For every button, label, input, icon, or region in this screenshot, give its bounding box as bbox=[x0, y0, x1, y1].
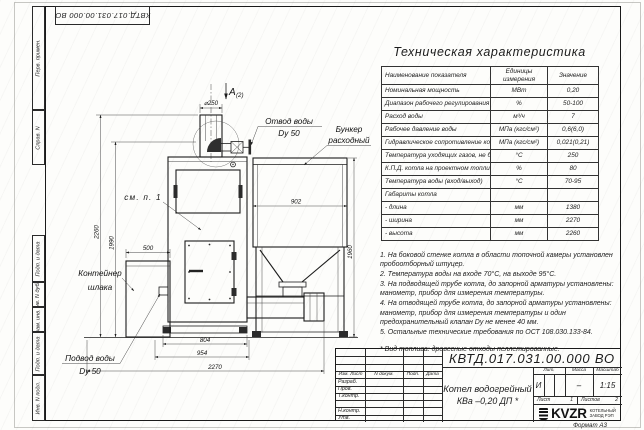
cell-units: МВт bbox=[491, 85, 548, 98]
format-label: Формат А3 bbox=[545, 422, 635, 429]
margin-box-perv-primen: Перв. примен. bbox=[32, 6, 45, 110]
sheets-number: 2 bbox=[615, 397, 618, 403]
col-data: Дата bbox=[423, 371, 442, 378]
row-prov: Пров. bbox=[336, 386, 365, 393]
label-water-inlet-dy: Dy 50 bbox=[79, 367, 101, 376]
note-item: 4. На отводящей трубе котла, до запорной… bbox=[380, 299, 618, 326]
cell-units: °С bbox=[491, 176, 548, 189]
margin-label: Взам. инв. N bbox=[36, 307, 42, 332]
outlet-valve bbox=[221, 140, 251, 155]
mass-value: – bbox=[565, 374, 593, 396]
margin-box-podp-data-2: Подп. и дата bbox=[32, 332, 45, 375]
feeder-drive bbox=[304, 293, 324, 321]
dim-500: 500 bbox=[143, 245, 154, 252]
cell-value: 0,20 bbox=[548, 85, 599, 98]
table-row: Температура уходящих газов, не более°С25… bbox=[382, 150, 599, 163]
product-name-line1: Котел водогрейный bbox=[443, 384, 531, 394]
col-header-value: Значение bbox=[548, 67, 599, 85]
cell-units bbox=[491, 189, 548, 202]
sheets-cell: Листов 2 bbox=[577, 396, 622, 404]
cell-value: 2260 bbox=[548, 228, 599, 241]
kvzr-logo-text: KVZR bbox=[551, 406, 587, 421]
title-block-doc-number: КВТД.017.031.00.000 ВО bbox=[442, 349, 622, 367]
company-logo: KVZR КОТЕЛЬНЫЙ ЗАВОД РЭП bbox=[533, 404, 622, 422]
cell-value bbox=[548, 189, 599, 202]
margin-box-vzam-inv: Взам. инв. N bbox=[32, 307, 45, 332]
margin-box-sprav-n: Справ. N bbox=[32, 110, 45, 165]
inlet-stub bbox=[159, 287, 168, 295]
company-subtitle: КОТЕЛЬНЫЙ ЗАВОД РЭП bbox=[590, 408, 616, 418]
row-razrab: Разраб. bbox=[336, 378, 365, 385]
scale-value: 1:15 bbox=[593, 374, 622, 396]
label-bunker-2: расходный bbox=[327, 136, 370, 145]
dim-902: 902 bbox=[291, 199, 302, 206]
view-label-a: А bbox=[228, 87, 236, 98]
col-podp: Подп. bbox=[403, 371, 423, 378]
view-label-a-sub: (2) bbox=[236, 92, 244, 99]
cell-units: м³/ч bbox=[491, 111, 548, 124]
upper-door bbox=[176, 170, 240, 213]
spec-table-title: Техническая характеристика bbox=[381, 45, 598, 59]
cell-units: мм bbox=[491, 215, 548, 228]
dim-2270: 2270 bbox=[207, 364, 222, 371]
label-see-note-1: см. п. 1 bbox=[124, 193, 161, 202]
label-water-outlet-dy: Dy 50 bbox=[278, 129, 300, 138]
cell-name: Температура уходящих газов, не более bbox=[382, 150, 491, 163]
product-name: Котел водогрейный КВа –0,20 ДП * bbox=[442, 367, 533, 422]
cell-value: 70-95 bbox=[548, 176, 599, 189]
cell-units: % bbox=[491, 163, 548, 176]
cell-name: Температура воды (вход/выход) bbox=[382, 176, 491, 189]
cell-name: К.П.Д. котла на проектном топливе bbox=[382, 163, 491, 176]
cell-units: °С bbox=[491, 150, 548, 163]
mass-label: Масса bbox=[565, 367, 593, 374]
cell-name: Габариты котла bbox=[382, 189, 491, 202]
cell-name: Гидравлическое сопротивление котла bbox=[382, 137, 491, 150]
cell-name: - ширина bbox=[382, 215, 491, 228]
cell-value: 80 bbox=[548, 163, 599, 176]
cell-units: % bbox=[491, 98, 548, 111]
table-row: Гидравлическое сопротивление котлаМПа (к… bbox=[382, 137, 599, 150]
col-izm-list: Изм. Лист bbox=[336, 371, 365, 378]
product-name-line2: КВа –0,20 ДП * bbox=[457, 396, 518, 406]
cell-units: мм bbox=[491, 228, 548, 241]
technical-notes: 1. На боковой стенке котла в области топ… bbox=[380, 251, 618, 355]
label-slag-container: Контейнер bbox=[78, 269, 122, 278]
sheet-cell: Лист 1 bbox=[533, 396, 577, 404]
screw-feeder bbox=[247, 293, 324, 321]
col-n-dokum: N докум. bbox=[365, 371, 403, 378]
label-water-outlet: Отвод воды bbox=[265, 117, 313, 126]
sheets-label: Листов bbox=[581, 397, 600, 403]
boiler-assembly-drawing: ⌀250 А (2) 500 902 1960 2260 199 bbox=[45, 6, 378, 421]
cell-value: 0,6(6,0) bbox=[548, 124, 599, 137]
lit-label: Лит. bbox=[533, 367, 565, 374]
drawing-sheet: Перв. примен. Справ. N Подп. и дата Инв.… bbox=[0, 0, 644, 430]
spec-header-row: Наименование показателя Единицы измерени… bbox=[382, 67, 599, 85]
cell-name: - высота bbox=[382, 228, 491, 241]
row-tkontr: Т.контр. bbox=[336, 393, 365, 400]
boiler-base bbox=[163, 326, 247, 333]
sheet-label: Лист bbox=[537, 397, 550, 403]
cell-name: Рабочее давление воды bbox=[382, 124, 491, 137]
margin-label: Инв. N подл. bbox=[36, 382, 42, 415]
margin-label: Справ. N bbox=[36, 126, 42, 149]
cell-units: мм bbox=[491, 202, 548, 215]
table-row: Расход водым³/ч7 bbox=[382, 111, 599, 124]
margin-label: Инв. N дубл. bbox=[36, 282, 42, 307]
title-block: Изм. Лист N докум. Подп. Дата Разраб. Пр… bbox=[335, 348, 621, 421]
cell-units: МПа (кгс/см²) bbox=[491, 124, 548, 137]
table-row: Температура воды (вход/выход)°С70-95 bbox=[382, 176, 599, 189]
cell-value: 50-100 bbox=[548, 98, 599, 111]
cell-value: 2270 bbox=[548, 215, 599, 228]
spec-table: Наименование показателя Единицы измерени… bbox=[381, 66, 599, 241]
note-item: 2. Температура воды на входе 70°С, на вы… bbox=[380, 270, 618, 279]
boiler-body bbox=[159, 157, 247, 333]
margin-box-podp-data-1: Подп. и дата bbox=[32, 235, 45, 282]
sheet-number: 1 bbox=[570, 397, 573, 403]
cell-value: 0,021(0,21) bbox=[548, 137, 599, 150]
cell-value: 1380 bbox=[548, 202, 599, 215]
table-row: Диапазон рабочего регулирования%50-100 bbox=[382, 98, 599, 111]
row-utv: Утв. bbox=[336, 415, 365, 422]
table-row: Рабочее давление водыМПа (кгс/см²)0,6(6,… bbox=[382, 124, 599, 137]
company-subtitle-line2: ЗАВОД РЭП bbox=[590, 413, 616, 418]
dim-1990: 1990 bbox=[109, 236, 116, 250]
table-row: - длинамм1380 bbox=[382, 202, 599, 215]
cell-value: 250 bbox=[548, 150, 599, 163]
label-slag-container-2: шлака bbox=[88, 283, 113, 292]
label-bunker: Бункер bbox=[336, 125, 363, 134]
dim-954: 954 bbox=[197, 350, 208, 357]
row-nkontr: Н.контр. bbox=[336, 407, 365, 414]
cell-name: Расход воды bbox=[382, 111, 491, 124]
margin-label: Перв. примен. bbox=[36, 39, 42, 76]
table-row: - ширинамм2270 bbox=[382, 215, 599, 228]
label-water-inlet: Подвод воды bbox=[65, 354, 115, 363]
note-item: 3. На подводящей трубе котла, до запорно… bbox=[380, 280, 618, 298]
note-item: 5. Остальные технические требования по О… bbox=[380, 328, 618, 337]
margin-box-inv-dubl: Инв. N дубл. bbox=[32, 282, 45, 307]
cell-units: МПа (кгс/см²) bbox=[491, 137, 548, 150]
cell-name: Номинальная мощность bbox=[382, 85, 491, 98]
table-row: Номинальная мощностьМВт0,20 bbox=[382, 85, 599, 98]
cell-value: 7 bbox=[548, 111, 599, 124]
kvzr-logo-icon bbox=[539, 407, 548, 420]
lit-value: И bbox=[533, 374, 544, 396]
table-row: Габариты котла bbox=[382, 189, 599, 202]
dim-2260: 2260 bbox=[94, 225, 101, 240]
margin-label: Подп. и дата bbox=[36, 336, 42, 371]
table-row: К.П.Д. котла на проектном топливе%80 bbox=[382, 163, 599, 176]
note-item: 1. На боковой стенке котла в области топ… bbox=[380, 251, 618, 269]
margin-label: Подп. и дата bbox=[36, 241, 42, 276]
cell-name: - длина bbox=[382, 202, 491, 215]
col-header-name: Наименование показателя bbox=[382, 67, 491, 85]
scale-label: Масштаб bbox=[593, 367, 622, 374]
cell-name: Диапазон рабочего регулирования bbox=[382, 98, 491, 111]
dim-1960: 1960 bbox=[347, 245, 354, 259]
fuel-bunker bbox=[252, 158, 348, 337]
dim-dia-250: ⌀250 bbox=[204, 100, 219, 107]
dim-804: 804 bbox=[200, 337, 211, 344]
flue-elbow bbox=[207, 138, 221, 152]
table-row: - высотамм2260 bbox=[382, 228, 599, 241]
margin-box-inv-podl: Инв. N подл. bbox=[32, 375, 45, 421]
col-header-units: Единицы измерения bbox=[491, 67, 548, 85]
